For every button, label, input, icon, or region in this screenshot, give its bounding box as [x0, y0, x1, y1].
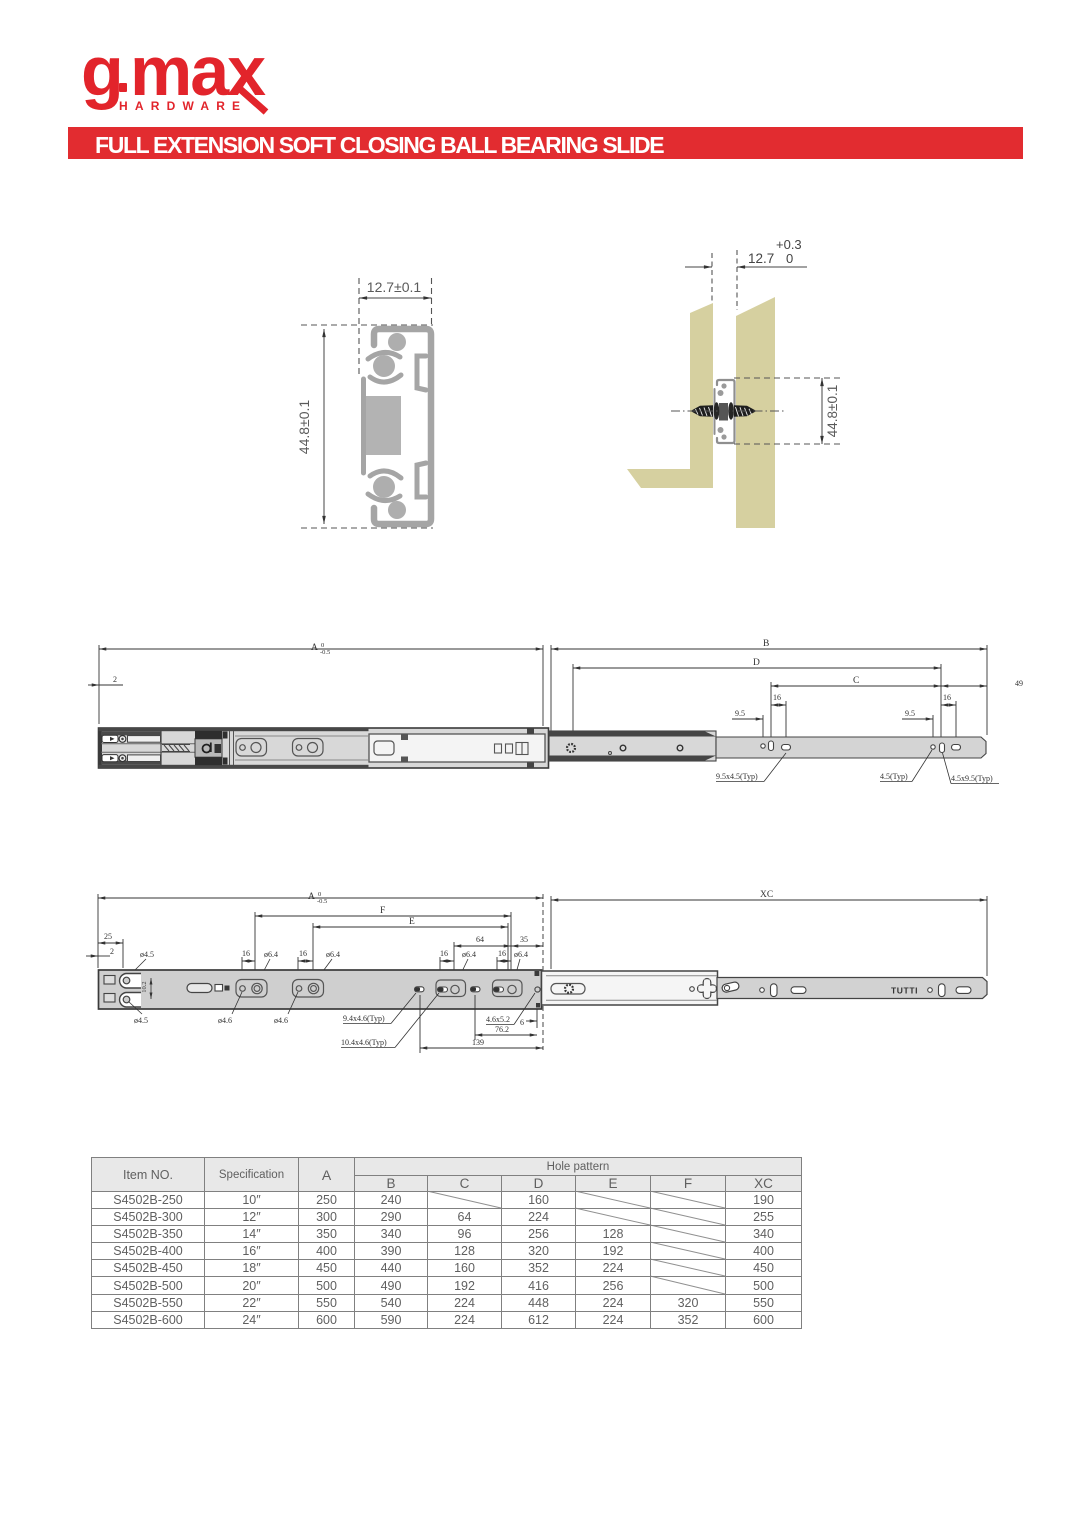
svg-text:35: 35	[520, 935, 528, 944]
svg-text:F: F	[380, 906, 385, 916]
svg-text:ø4.6: ø4.6	[274, 1016, 288, 1025]
svg-text:ø6.4: ø6.4	[462, 950, 476, 959]
svg-text:A: A	[308, 892, 315, 902]
svg-text:10.4x4.6(Typ): 10.4x4.6(Typ)	[341, 1038, 387, 1047]
svg-text:12.7: 12.7	[748, 251, 774, 266]
svg-text:B: B	[763, 639, 769, 649]
svg-text:C: C	[853, 676, 859, 686]
svg-text:9.5x4.5(Typ): 9.5x4.5(Typ)	[716, 772, 758, 781]
svg-text:ø4.6: ø4.6	[218, 1016, 232, 1025]
svg-text:2: 2	[113, 675, 117, 684]
svg-text:9.4x4.6(Typ): 9.4x4.6(Typ)	[343, 1014, 385, 1023]
svg-text:ø6.4: ø6.4	[264, 950, 278, 959]
svg-text:44.8±0.1: 44.8±0.1	[296, 400, 312, 455]
svg-text:16: 16	[440, 949, 448, 958]
svg-text:16: 16	[299, 949, 307, 958]
svg-text:9.5: 9.5	[905, 709, 915, 718]
svg-text:4.6x5.2: 4.6x5.2	[486, 1015, 510, 1024]
svg-text:25: 25	[104, 932, 112, 941]
svg-text:0: 0	[321, 642, 324, 649]
svg-text:9.5: 9.5	[735, 709, 745, 718]
svg-text:XC: XC	[760, 890, 773, 900]
svg-text:16: 16	[943, 693, 951, 702]
svg-text:+0.3: +0.3	[776, 237, 802, 252]
svg-text:16: 16	[498, 949, 506, 958]
svg-text:16: 16	[773, 693, 781, 702]
svg-text:TUTTI: TUTTI	[891, 986, 918, 996]
svg-text:ø4.5: ø4.5	[140, 950, 154, 959]
svg-text:ø6.4: ø6.4	[326, 950, 340, 959]
svg-text:E: E	[409, 917, 415, 927]
svg-text:0: 0	[318, 891, 321, 898]
svg-text:49: 49	[1015, 679, 1023, 688]
svg-text:64: 64	[476, 935, 484, 944]
svg-text:139: 139	[472, 1038, 484, 1047]
svg-text:12.7±0.1: 12.7±0.1	[367, 279, 422, 295]
svg-text:2: 2	[110, 947, 114, 956]
svg-text:16: 16	[242, 949, 250, 958]
svg-text:4.5(Typ): 4.5(Typ)	[880, 772, 908, 781]
svg-text:A: A	[311, 643, 318, 653]
svg-text:76.2: 76.2	[495, 1025, 509, 1034]
svg-text:ø6.4: ø6.4	[514, 950, 528, 959]
svg-text:0: 0	[786, 251, 793, 266]
svg-text:-0.5: -0.5	[317, 898, 327, 905]
svg-text:44.8±0.1: 44.8±0.1	[825, 385, 840, 437]
svg-text:10.2: 10.2	[141, 981, 148, 992]
svg-text:D: D	[753, 658, 760, 668]
svg-text:4.5x9.5(Typ): 4.5x9.5(Typ)	[951, 774, 993, 783]
svg-text:6: 6	[520, 1018, 524, 1027]
svg-text:-0.5: -0.5	[320, 649, 330, 656]
svg-text:ø4.5: ø4.5	[134, 1016, 148, 1025]
